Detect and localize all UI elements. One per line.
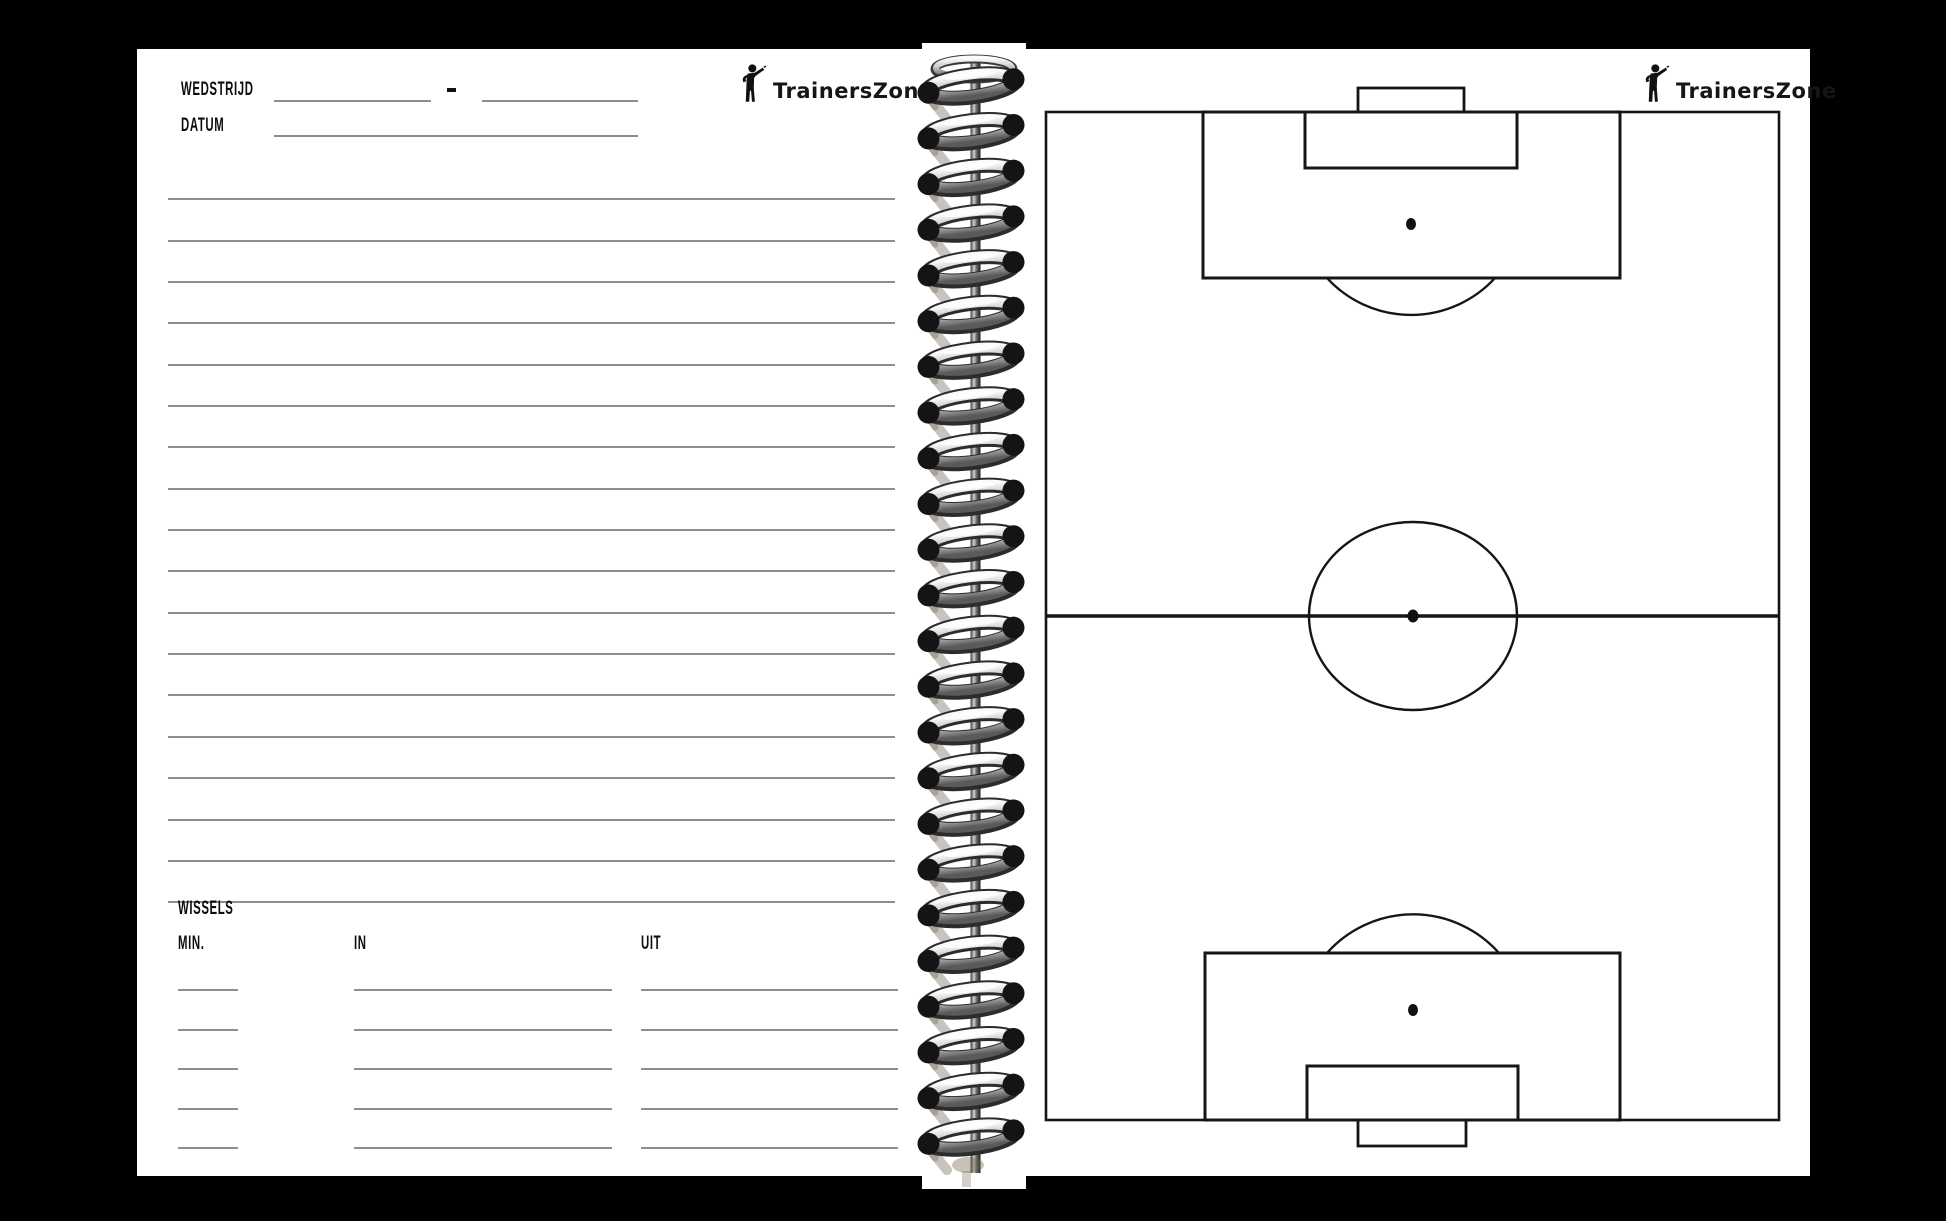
wedstrijd-label: WEDSTRIJD <box>181 79 254 101</box>
notebook-spread: WEDSTRIJD DATUM TrainersZone <box>137 49 1810 1176</box>
ruled-line <box>168 366 895 407</box>
pitch-top-penalty-spot <box>1406 218 1416 230</box>
wissels-in-line <box>354 1147 612 1149</box>
ruled-line <box>168 324 895 365</box>
wissels-rows <box>137 952 917 1149</box>
football-pitch-diagram <box>1036 80 1816 1170</box>
wedstrijd-away-field-line <box>482 100 638 102</box>
wissels-row <box>137 991 917 1030</box>
ruled-line <box>168 738 895 779</box>
ruled-line <box>168 572 895 613</box>
spine-bottom-smudge-tail <box>962 1171 971 1187</box>
ruled-line <box>168 200 895 241</box>
ruled-lines <box>168 159 895 903</box>
pitch-bottom-goal-area <box>1307 1066 1518 1120</box>
pitch-bottom-penalty-arc <box>1327 914 1499 953</box>
coach-silhouette-icon <box>735 62 766 105</box>
wissels-row <box>137 1031 917 1070</box>
ruled-line <box>168 779 895 820</box>
datum-label: DATUM <box>181 115 224 137</box>
pitch-top-penalty-arc <box>1327 278 1495 315</box>
ruled-line <box>168 283 895 324</box>
wissels-row <box>137 1110 917 1149</box>
ruled-line <box>168 448 895 489</box>
scanned-notebook-image: WEDSTRIJD DATUM TrainersZone <box>0 0 1946 1221</box>
ruled-line <box>168 655 895 696</box>
wissels-row <box>137 952 917 991</box>
wissels-uit-line <box>641 1147 898 1149</box>
ruled-line <box>168 531 895 572</box>
pitch-bottom-penalty-area <box>1205 953 1620 1120</box>
pitch-top-penalty-area <box>1203 112 1620 278</box>
ruled-line <box>168 696 895 737</box>
pitch-bottom-goal <box>1358 1120 1466 1146</box>
score-separator-dash <box>447 88 456 92</box>
ruled-line <box>168 614 895 655</box>
ruled-line <box>168 862 895 903</box>
ruled-line <box>168 821 895 862</box>
ruled-line <box>168 407 895 448</box>
pitch-center-spot <box>1408 610 1419 623</box>
wissels-row <box>137 1070 917 1109</box>
pitch-top-goal <box>1358 88 1464 112</box>
wedstrijd-home-field-line <box>274 100 431 102</box>
ruled-line <box>168 242 895 283</box>
ruled-line <box>168 159 895 200</box>
pitch-top-goal-area <box>1305 112 1517 168</box>
datum-field-line <box>274 135 638 137</box>
pitch-bottom-penalty-spot <box>1408 1004 1418 1016</box>
wissels-min-line <box>178 1147 238 1149</box>
brand-left: TrainersZone <box>735 62 934 105</box>
ruled-line <box>168 490 895 531</box>
wissels-title: WISSELS <box>178 898 234 920</box>
spine-bottom-smudge <box>952 1157 984 1173</box>
spiral-binding <box>910 43 1040 1189</box>
